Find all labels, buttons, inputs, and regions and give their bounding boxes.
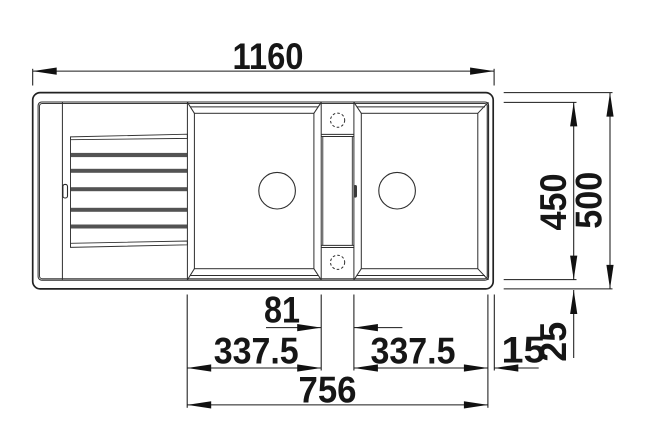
svg-text:337.5: 337.5 — [371, 331, 456, 372]
svg-text:337.5: 337.5 — [214, 331, 299, 372]
svg-text:500: 500 — [569, 172, 610, 229]
svg-text:25: 25 — [533, 322, 574, 362]
svg-text:1160: 1160 — [233, 36, 304, 77]
svg-text:81: 81 — [264, 290, 300, 331]
svg-text:756: 756 — [299, 369, 357, 410]
